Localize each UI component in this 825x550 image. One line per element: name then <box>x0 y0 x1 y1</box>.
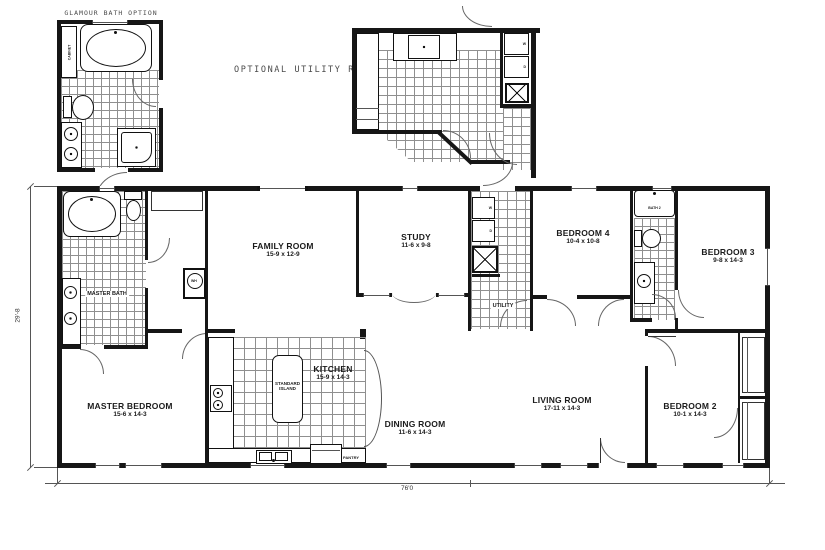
door-leaf <box>648 336 676 337</box>
window <box>125 463 162 468</box>
water-heater: WH <box>187 273 203 289</box>
wall <box>159 20 163 80</box>
dryer-letter: D <box>489 229 492 234</box>
wall <box>531 28 536 178</box>
sliding-door <box>257 186 308 191</box>
utility-sink <box>408 35 440 59</box>
closet-wall <box>738 396 767 399</box>
wall <box>472 274 500 277</box>
shower-pan <box>121 132 152 163</box>
wall <box>630 186 633 322</box>
pantry-label: PANTRY <box>343 455 359 460</box>
bath2-label: BATH 2 <box>635 206 674 211</box>
door-swing-arc <box>547 299 576 326</box>
door-swing-arc <box>462 6 492 27</box>
washer-box: W <box>472 197 495 219</box>
window <box>386 463 411 468</box>
dimension-line-bottom <box>45 483 785 484</box>
island-label: STANDARD ISLAND <box>273 381 302 391</box>
sink <box>64 312 77 325</box>
wall <box>500 33 503 106</box>
dimension-tick-mid <box>470 480 471 487</box>
sink <box>64 127 78 141</box>
door-swing-arc <box>600 438 625 463</box>
overall-width-dimension: 76'0 <box>398 485 416 492</box>
dimension-extension <box>34 467 57 468</box>
sink <box>64 147 78 161</box>
closet-shelf <box>742 337 765 393</box>
wall <box>57 168 95 172</box>
glamour-bath-title: GLAMOUR BATH OPTION <box>53 9 169 17</box>
toilet-tank <box>124 191 142 200</box>
dining-room-label: DINING ROOM 11-6 x 14-3 <box>385 419 446 437</box>
master-bath-label: MASTER BATH <box>85 282 129 300</box>
wall <box>530 186 533 331</box>
wall <box>145 288 148 347</box>
living-room-label: LIVING ROOM 17-11 x 14-3 <box>532 395 591 413</box>
dryer-box: D <box>472 220 495 242</box>
cabinet-label: CABINET <box>68 36 73 70</box>
window <box>95 463 120 468</box>
toilet-bowl <box>72 95 94 120</box>
window <box>765 248 770 286</box>
wall <box>645 329 770 333</box>
dimension-extension <box>34 186 57 187</box>
wall <box>577 295 633 299</box>
pantry-shelf-line <box>312 450 340 451</box>
water-heater-box <box>472 246 498 273</box>
wall <box>630 318 652 322</box>
wall <box>645 366 648 463</box>
door-swing-arc <box>648 336 676 366</box>
pantry-cabinet <box>310 444 342 464</box>
bay-arc <box>392 293 436 303</box>
family-room-label: FAMILY ROOM 15-9 x 12-9 <box>252 241 313 259</box>
wall <box>57 345 81 349</box>
toilet-tank <box>634 230 642 247</box>
bedroom2-label: BEDROOM 2 10-1 x 14-3 <box>663 401 716 419</box>
wall <box>128 168 163 172</box>
wall <box>500 104 531 108</box>
door-swing-arc <box>598 299 624 326</box>
dimension-line-left <box>30 186 31 468</box>
water-heater-label: WH <box>191 279 197 284</box>
sink-basin <box>259 452 272 461</box>
exterior-wall-right <box>765 186 770 468</box>
sink <box>64 286 77 299</box>
burner <box>213 400 223 410</box>
sink-faucet <box>272 459 275 462</box>
tub-faucet <box>653 192 656 195</box>
wall <box>533 295 547 299</box>
study-label: STUDY 11-6 x 9-8 <box>401 232 431 250</box>
window <box>402 186 418 191</box>
door-swing-arc <box>714 408 738 438</box>
washer-letter: W <box>523 42 526 47</box>
counter <box>356 33 379 130</box>
overall-depth-dimension: 29'-8 <box>15 305 22 325</box>
door-leaf <box>600 438 601 463</box>
wall <box>675 186 678 290</box>
washer-box: W <box>504 33 529 55</box>
dryer-letter: D <box>523 65 526 70</box>
washer-letter: W <box>489 206 492 211</box>
window <box>514 463 542 468</box>
window <box>438 293 465 297</box>
master-bedroom-label: MASTER BEDROOM 15-6 x 14-3 <box>87 401 172 419</box>
window <box>656 463 684 468</box>
wall <box>159 108 163 172</box>
wall <box>205 186 208 329</box>
door-swing-arc <box>80 349 104 374</box>
toilet-tank <box>63 96 72 118</box>
closet-shelf <box>151 191 203 211</box>
utility-label: UTILITY <box>491 294 516 312</box>
window <box>560 463 588 468</box>
bedroom3-label: BEDROOM 3 9-8 x 14-3 <box>701 247 754 265</box>
dimension-tick <box>27 464 34 471</box>
tub-faucet <box>114 31 117 34</box>
toilet-bowl <box>126 200 141 221</box>
sink <box>637 274 651 288</box>
bedroom4-label: BEDROOM 4 10-4 x 10-8 <box>556 228 609 246</box>
burner <box>213 388 223 398</box>
door-swing-arc <box>483 162 513 186</box>
master-tub-basin <box>68 196 116 232</box>
toilet-bowl <box>642 229 661 248</box>
counter-shelf-line <box>356 108 379 109</box>
wall <box>645 329 648 336</box>
closet-shelf <box>742 402 765 460</box>
wall <box>145 329 182 333</box>
closet-rod-line <box>747 337 748 393</box>
door-swing-arc <box>182 333 207 359</box>
wall <box>356 186 359 297</box>
wall <box>352 130 442 134</box>
kitchen-label: KITCHEN 15-9 x 14-3 <box>313 364 352 382</box>
closet-rod-line <box>747 402 748 460</box>
floor-plan-canvas: GLAMOUR BATH OPTION CABINET OPTIONAL UTI… <box>0 0 825 550</box>
garden-tub-basin <box>86 29 146 67</box>
door-swing-arc <box>678 290 704 318</box>
window <box>363 293 390 297</box>
wall <box>104 345 148 349</box>
dryer-box: D <box>504 56 529 78</box>
kitchen-island: STANDARD ISLAND <box>272 355 303 423</box>
window <box>722 463 744 468</box>
sink-basin <box>275 452 288 461</box>
wall <box>205 329 235 333</box>
counter-shelf-line <box>356 119 379 120</box>
tub-faucet <box>90 198 93 201</box>
water-heater-box <box>505 83 529 103</box>
glamour-bath-cabinet: CABINET <box>61 26 77 78</box>
optional-utility-tile-floor <box>378 50 503 162</box>
door-swing-arc <box>148 238 170 263</box>
front-door-opening <box>598 463 628 468</box>
kitchen-arch <box>364 350 382 447</box>
window <box>571 186 597 191</box>
